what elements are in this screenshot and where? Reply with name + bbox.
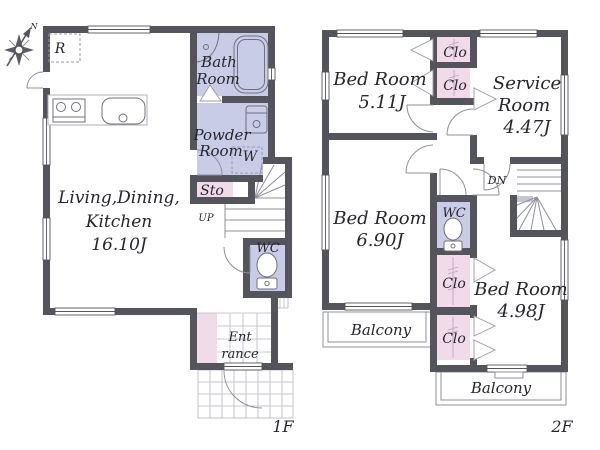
bedroom3-label-line1: Bed Room	[473, 279, 567, 300]
toilet-icon-1f	[257, 253, 277, 289]
bedroom1-label-line1: Bed Room	[332, 69, 426, 90]
service-room-label-line1: Service	[493, 73, 561, 94]
floor2-plan: Bed Room 5.11J Service Room 4.47J Clo Cl…	[322, 30, 574, 436]
window	[268, 68, 275, 80]
fridge-label: R	[54, 41, 66, 57]
window	[322, 72, 329, 100]
window	[561, 75, 568, 135]
entrance-label-line2: rance	[221, 347, 259, 362]
entrance-step-area	[197, 313, 217, 363]
washer-label: W	[243, 149, 259, 165]
wc-label-1f: WC	[256, 241, 279, 256]
closet2-label: Clo	[443, 78, 467, 94]
bedroom2-label-line2: 6.90J	[356, 230, 405, 251]
toilet-icon-2f	[444, 218, 462, 251]
bedroom3-label-line2: 4.98J	[496, 301, 546, 322]
bath-label-line1: Bath	[200, 53, 237, 71]
floor-plan-page: N	[0, 0, 600, 450]
bedroom1-label-line2: 5.11J	[358, 92, 407, 113]
window	[480, 30, 537, 37]
floor-plan-drawing: N	[0, 0, 600, 450]
bedroom2-label-line1: Bed Room	[332, 208, 426, 229]
ldk-label-line2: Kitchen	[85, 212, 152, 232]
stairs-up-label: UP	[198, 213, 213, 224]
window	[322, 175, 329, 250]
powder-label-line2: Room	[198, 142, 243, 160]
wc-label-2f: WC	[442, 206, 465, 221]
closet4-label: Clo	[442, 331, 466, 347]
balcony2-label: Balcony	[470, 379, 532, 397]
window	[43, 218, 50, 260]
ldk-label-line3: 16.10J	[91, 235, 148, 255]
front-door-leaf	[224, 363, 262, 370]
stairs-down-label: DN	[487, 174, 507, 187]
closet3-label: Clo	[442, 276, 466, 292]
storage-label: Sto	[200, 183, 224, 199]
compass-north-label: N	[30, 22, 39, 31]
service-room-label-line2: Room	[497, 95, 550, 116]
floor1-plan: Living,Dining, Kitchen 16.10J Bath Room …	[27, 26, 295, 436]
balcony-door	[345, 303, 412, 310]
balcony1-label: Balcony	[350, 321, 412, 339]
kitchen-counter-icon	[48, 95, 147, 125]
floor1-label: 1F	[272, 417, 294, 436]
ldk-label-line1: Living,Dining,	[57, 188, 180, 208]
bath-label-line2: Room	[195, 70, 240, 88]
balcony-door	[487, 365, 527, 378]
staircase-2f	[517, 170, 561, 230]
compass-icon: N	[4, 22, 39, 66]
service-room-label-line3: 4.47J	[502, 117, 552, 138]
window	[337, 30, 403, 37]
window	[55, 308, 115, 315]
entrance-label-line1: Ent	[227, 330, 252, 345]
window	[88, 26, 150, 33]
porch-tile-grid	[198, 370, 293, 418]
floor2-label: 2F	[550, 417, 573, 436]
closet1-label: Clo	[443, 45, 467, 61]
